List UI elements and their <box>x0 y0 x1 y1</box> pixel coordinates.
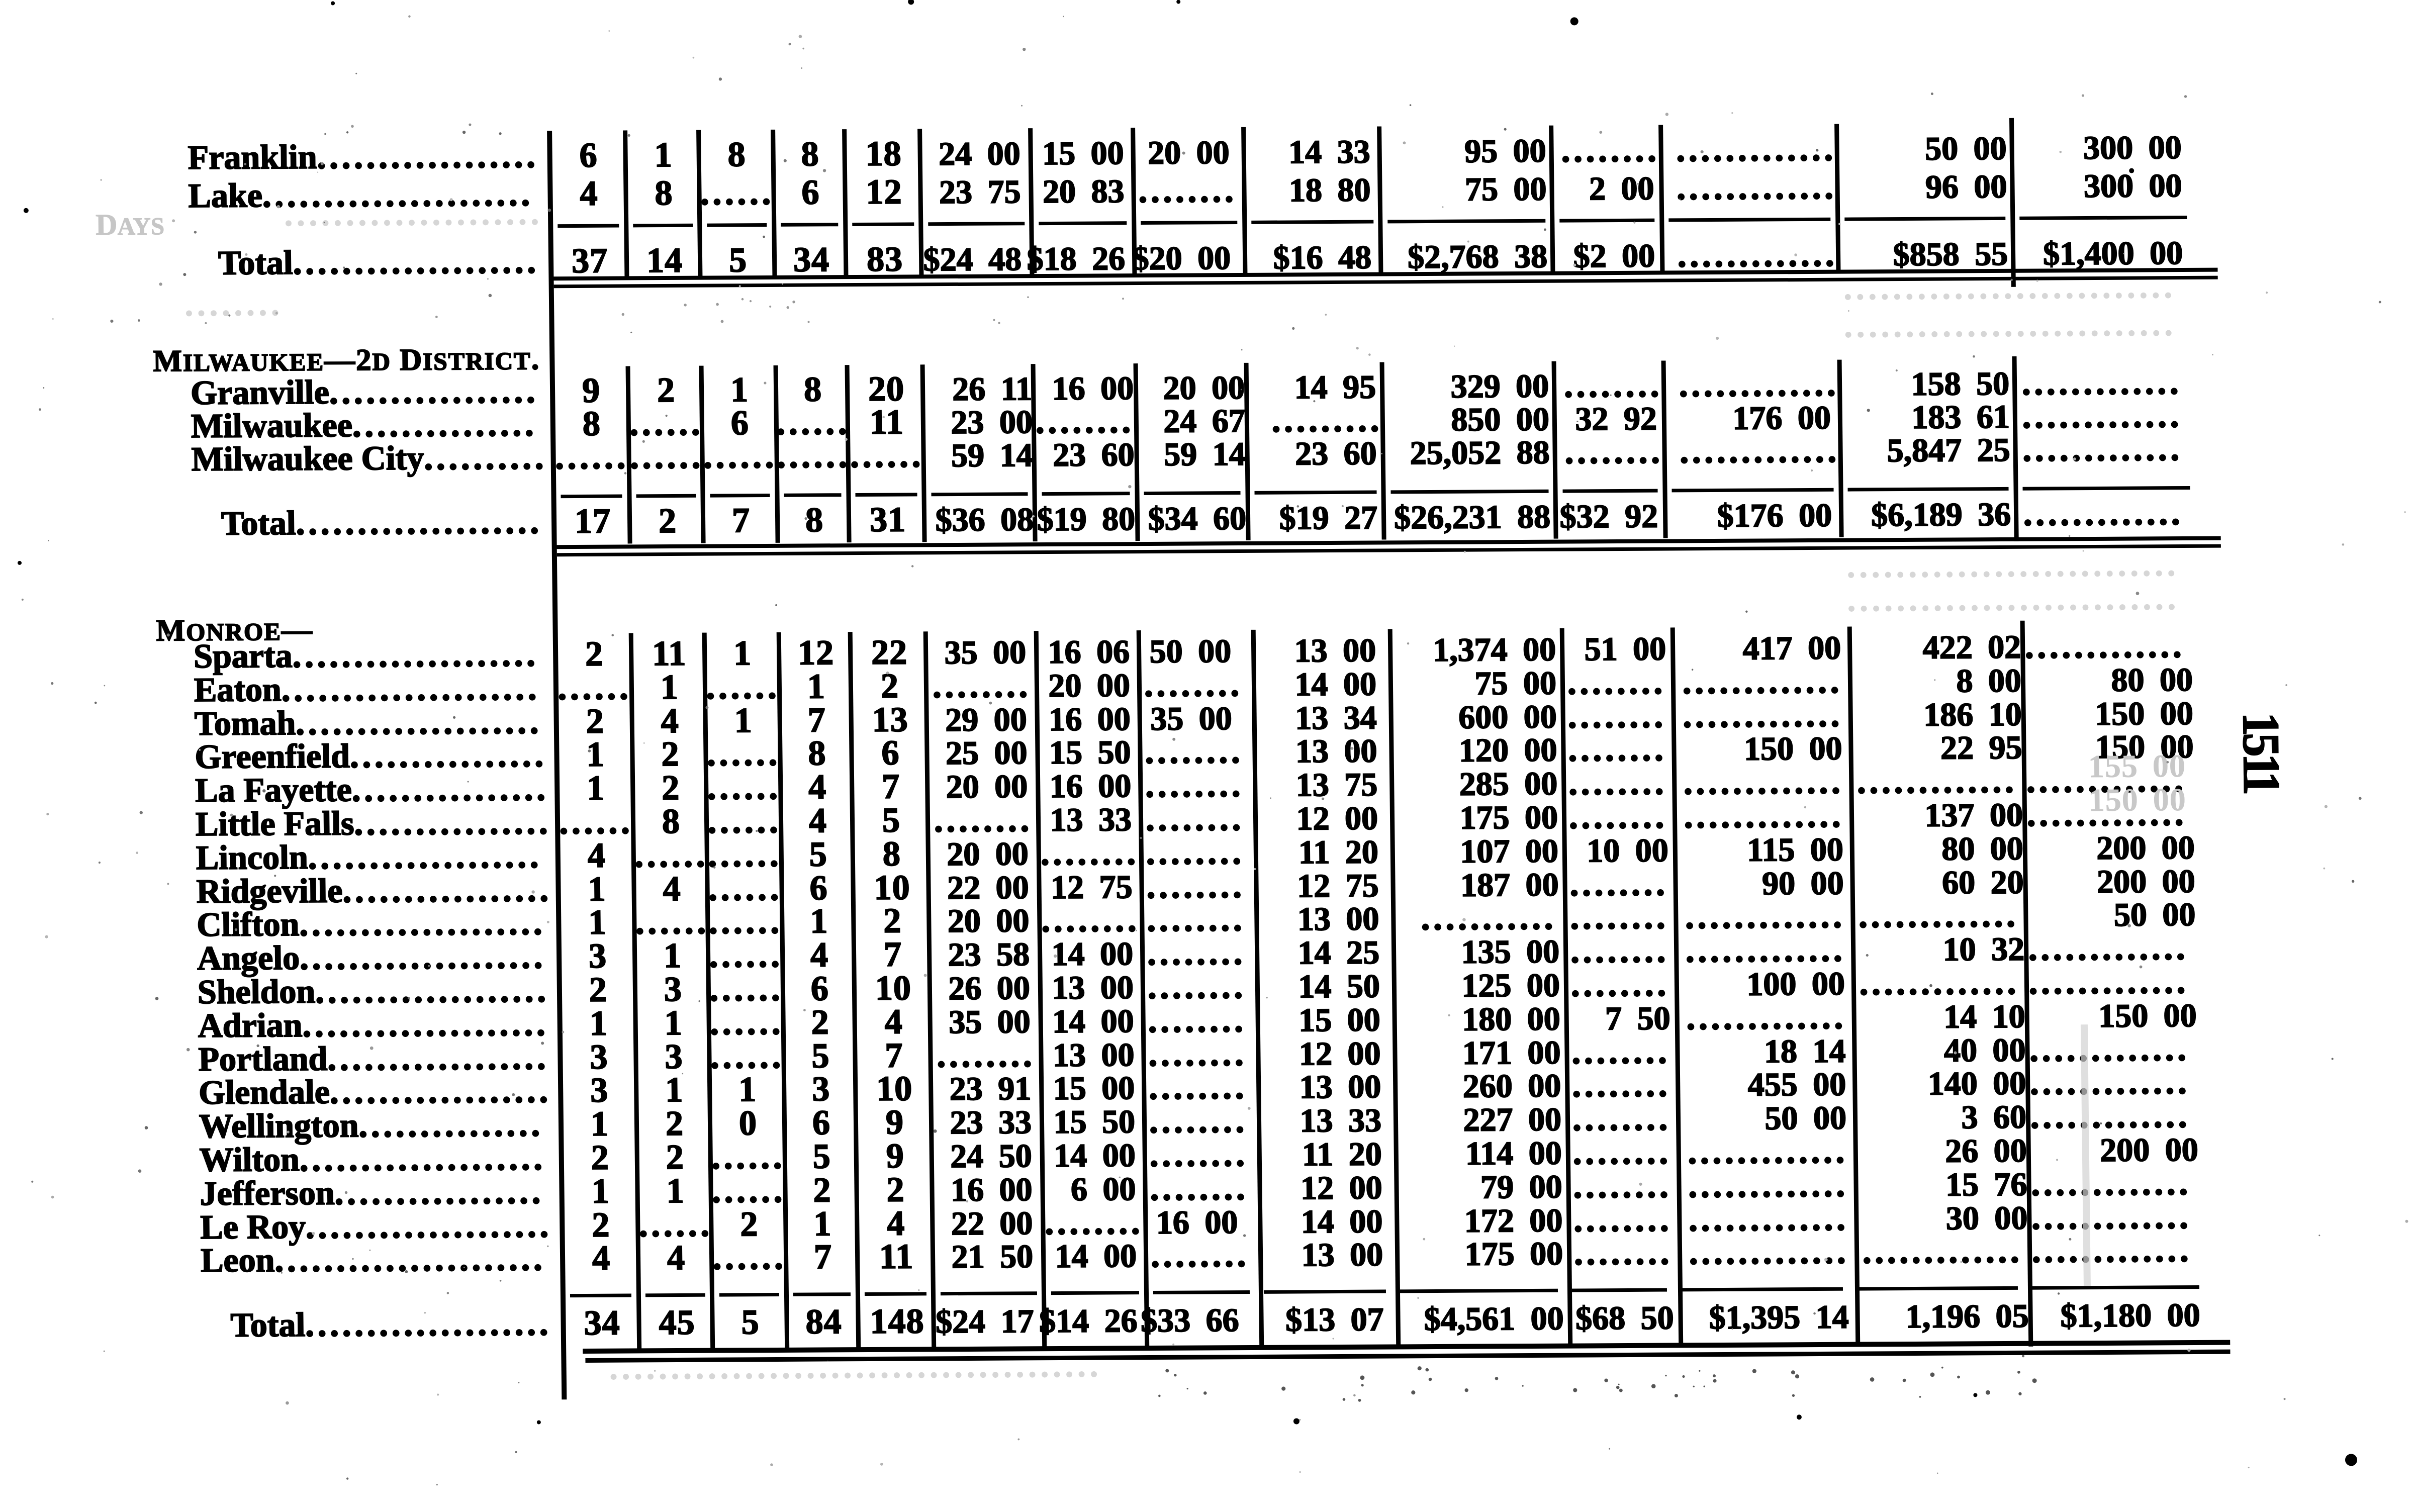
svg-text:31: 31 <box>870 501 906 539</box>
svg-text:$2 00: $2 00 <box>1573 238 1655 275</box>
svg-text:7: 7 <box>884 935 902 974</box>
svg-text:600 00: 600 00 <box>1458 699 1557 736</box>
svg-text:$2,768 38: $2,768 38 <box>1408 238 1548 275</box>
svg-text:......: ...... <box>634 836 709 875</box>
svg-text:........: ........ <box>1150 1169 1249 1208</box>
svg-text:260 00: 260 00 <box>1462 1068 1561 1105</box>
svg-text:......: ...... <box>706 668 780 707</box>
svg-text:$13 07: $13 07 <box>1285 1301 1384 1339</box>
svg-text:850 00: 850 00 <box>1451 401 1549 438</box>
svg-text:$1,180 00: $1,180 00 <box>2060 1297 2200 1334</box>
svg-text:12: 12 <box>866 173 902 212</box>
svg-text:300 00: 300 00 <box>2083 129 2182 166</box>
svg-text:11 20: 11 20 <box>1302 1136 1382 1173</box>
svg-text:2: 2 <box>591 1139 609 1177</box>
svg-text:15 00: 15 00 <box>1042 135 1124 172</box>
svg-text:455 00: 455 00 <box>1747 1066 1846 1103</box>
svg-text:.............: ............. <box>1859 896 2019 935</box>
svg-text:$34 60: $34 60 <box>1148 500 1246 537</box>
svg-text:140 00: 140 00 <box>1927 1065 2026 1102</box>
svg-text:5: 5 <box>809 835 827 874</box>
svg-text:20 00: 20 00 <box>1048 667 1130 704</box>
svg-text:.............: ............. <box>2031 1231 2192 1270</box>
svg-text:37: 37 <box>572 242 608 280</box>
svg-text:5: 5 <box>741 1303 760 1342</box>
svg-text:22 00: 22 00 <box>947 869 1029 906</box>
svg-text:50 00: 50 00 <box>1925 130 2007 167</box>
svg-text:5: 5 <box>729 241 748 279</box>
svg-text:155 00: 155 00 <box>2088 748 2186 784</box>
svg-text:2: 2 <box>662 769 680 807</box>
svg-text:35 00: 35 00 <box>949 1003 1031 1041</box>
svg-text:83: 83 <box>867 240 903 279</box>
svg-text:$26,231 88: $26,231 88 <box>1394 499 1551 536</box>
svg-text:150 00: 150 00 <box>2088 782 2186 818</box>
svg-text:1: 1 <box>654 136 673 174</box>
svg-text:4: 4 <box>667 1239 686 1277</box>
svg-text:2: 2 <box>661 735 680 774</box>
svg-text:.............: ............. <box>2024 626 2185 666</box>
svg-text:.............: ............. <box>1676 130 1836 169</box>
svg-text:15 00: 15 00 <box>1298 1002 1380 1039</box>
svg-text:Total....................: Total.................... <box>218 242 540 282</box>
svg-text:200 00: 200 00 <box>2100 1131 2198 1169</box>
svg-text:13 33: 13 33 <box>1050 801 1132 838</box>
svg-text:3: 3 <box>590 1071 609 1110</box>
svg-text:12 00: 12 00 <box>1299 1035 1381 1073</box>
svg-text:20 00: 20 00 <box>947 835 1029 873</box>
svg-text:$18 26: $18 26 <box>1027 240 1125 277</box>
svg-text:20 83: 20 83 <box>1043 173 1125 210</box>
svg-text:.............: ............. <box>1859 963 2019 1003</box>
svg-text:2: 2 <box>589 971 607 1009</box>
svg-text:$20 00: $20 00 <box>1132 240 1231 277</box>
svg-text:......: ...... <box>707 802 782 841</box>
svg-text:......: ...... <box>850 436 924 475</box>
svg-text:........: ........ <box>1151 1236 1250 1275</box>
svg-text:......: ...... <box>559 802 633 841</box>
svg-text:22 00: 22 00 <box>951 1205 1033 1242</box>
svg-text:158 50: 158 50 <box>1911 365 2009 403</box>
svg-text:11: 11 <box>879 1238 914 1276</box>
svg-text:50 00: 50 00 <box>1149 633 1231 670</box>
svg-text:.............: ............. <box>2028 962 2189 1002</box>
svg-text:20 00: 20 00 <box>1163 369 1245 407</box>
svg-text:25,052 88: 25,052 88 <box>1410 434 1550 471</box>
svg-text:5,847 25: 5,847 25 <box>1887 432 2010 469</box>
svg-text:14 00: 14 00 <box>1054 1137 1136 1174</box>
svg-text:17: 17 <box>575 502 611 541</box>
svg-text:2: 2 <box>585 635 604 674</box>
svg-text:12 00: 12 00 <box>1301 1170 1382 1207</box>
svg-text:$19 80: $19 80 <box>1037 501 1135 538</box>
svg-text:........: ........ <box>1045 1203 1144 1242</box>
svg-text:25 00: 25 00 <box>946 734 1028 772</box>
svg-text:1: 1 <box>591 1105 609 1144</box>
svg-text:.............: ............. <box>1679 365 1839 405</box>
svg-text:.............: ............. <box>1689 1233 1849 1272</box>
svg-text:14 50: 14 50 <box>1298 968 1380 1005</box>
svg-text:........: ........ <box>932 666 1031 705</box>
svg-text:1,196 05: 1,196 05 <box>1905 1298 2029 1335</box>
svg-text:50 00: 50 00 <box>1765 1100 1846 1137</box>
svg-text:50 00: 50 00 <box>2113 896 2195 933</box>
svg-text:.............: ............. <box>2022 429 2183 469</box>
svg-text:107 00: 107 00 <box>1460 833 1558 870</box>
svg-text:23 00: 23 00 <box>951 404 1033 441</box>
svg-text:........: ........ <box>1138 171 1237 210</box>
svg-text:183 61: 183 61 <box>1911 399 2010 436</box>
svg-text:14 10: 14 10 <box>1943 998 2025 1035</box>
svg-text:3 60: 3 60 <box>1961 1099 2026 1136</box>
svg-text:........: ........ <box>1035 402 1134 441</box>
svg-text:26 00: 26 00 <box>1945 1132 2027 1170</box>
svg-text:.............: ............. <box>2023 494 2183 533</box>
svg-text:$68 50: $68 50 <box>1575 1300 1674 1337</box>
svg-text:75 00: 75 00 <box>1474 665 1556 702</box>
svg-text:23 60: 23 60 <box>1053 436 1135 474</box>
svg-text:13 00: 13 00 <box>1053 1036 1135 1074</box>
svg-text:172 00: 172 00 <box>1464 1202 1562 1240</box>
svg-text:.............: ............. <box>1680 431 1840 471</box>
svg-text:300 00: 300 00 <box>2084 167 2182 205</box>
svg-text:......: ...... <box>711 1138 786 1177</box>
svg-text:6: 6 <box>812 1103 831 1142</box>
svg-text:.............: ............. <box>1684 796 1844 836</box>
svg-text:.............: ............. <box>1686 998 1846 1037</box>
svg-text:115 00: 115 00 <box>1747 831 1844 869</box>
svg-text:8: 8 <box>805 501 824 539</box>
svg-text:45: 45 <box>659 1303 695 1342</box>
svg-text:29 00: 29 00 <box>945 701 1027 738</box>
svg-text:1: 1 <box>587 769 605 808</box>
svg-text:34: 34 <box>584 1304 620 1343</box>
svg-text:8: 8 <box>882 835 901 874</box>
svg-text:......: ...... <box>555 437 629 477</box>
svg-text:200 00: 200 00 <box>2097 863 2195 900</box>
svg-text:Milwaukee City..........: Milwaukee City.......... <box>191 438 547 479</box>
svg-text:15 50: 15 50 <box>1053 1103 1135 1141</box>
svg-text:9: 9 <box>886 1137 904 1176</box>
svg-text:6: 6 <box>579 136 598 175</box>
svg-text:59 14: 59 14 <box>951 437 1033 474</box>
svg-text:9: 9 <box>886 1103 904 1142</box>
svg-text:1: 1 <box>738 1070 757 1109</box>
svg-text:1: 1 <box>586 735 605 774</box>
svg-text:24 00: 24 00 <box>939 135 1020 172</box>
svg-text:$19 27: $19 27 <box>1279 500 1377 537</box>
svg-text:4: 4 <box>580 174 598 213</box>
svg-text:175 00: 175 00 <box>1459 799 1558 836</box>
svg-text:6: 6 <box>801 173 820 212</box>
svg-text:...........: ........... <box>1421 898 1556 937</box>
svg-text:2: 2 <box>813 1171 831 1209</box>
svg-text:......: ...... <box>709 970 784 1009</box>
svg-text:150 00: 150 00 <box>1744 730 1842 768</box>
svg-text:Leon......................: Leon...................... <box>201 1239 546 1280</box>
svg-text:15 76: 15 76 <box>1945 1166 2027 1203</box>
svg-text:........: ........ <box>1040 833 1139 873</box>
svg-text:$14 26: $14 26 <box>1039 1302 1138 1340</box>
svg-text:......: ...... <box>710 1003 784 1043</box>
svg-text:........: ........ <box>1564 432 1663 471</box>
svg-text:186 10: 186 10 <box>1923 696 2022 733</box>
svg-text:11: 11 <box>652 634 687 673</box>
svg-text:Franklin..................: Franklin.................. <box>188 136 539 177</box>
svg-text:3: 3 <box>589 937 607 976</box>
svg-text:135 00: 135 00 <box>1461 933 1559 971</box>
svg-text:$36 08: $36 08 <box>935 501 1034 538</box>
svg-text:........: ........ <box>934 800 1033 839</box>
svg-text:16 00: 16 00 <box>1049 701 1131 738</box>
svg-text:1: 1 <box>660 668 679 707</box>
svg-text:14 00: 14 00 <box>1055 1238 1137 1275</box>
svg-text:.............: ............. <box>1677 168 1837 208</box>
svg-text:40 00: 40 00 <box>1944 1032 2026 1069</box>
svg-text:........: ........ <box>1569 797 1668 836</box>
svg-text:35 00: 35 00 <box>944 634 1026 671</box>
svg-text:13 00: 13 00 <box>1294 632 1376 670</box>
svg-text:23 75: 23 75 <box>939 173 1021 211</box>
svg-text:227 00: 227 00 <box>1463 1101 1561 1139</box>
svg-text:4: 4 <box>810 935 829 974</box>
svg-text:2: 2 <box>666 1138 684 1177</box>
svg-text:.............: ............. <box>1862 1232 2022 1271</box>
svg-text:$4,561 00: $4,561 00 <box>1424 1300 1564 1338</box>
svg-text:1: 1 <box>664 1004 683 1043</box>
svg-text:1: 1 <box>810 902 828 940</box>
svg-text:16 00: 16 00 <box>951 1171 1033 1208</box>
svg-text:........: ........ <box>1041 900 1140 939</box>
svg-text:1,374 00: 1,374 00 <box>1433 631 1556 669</box>
svg-text:0: 0 <box>739 1104 758 1143</box>
svg-text:3: 3 <box>812 1070 830 1108</box>
svg-text:......: ...... <box>709 936 783 975</box>
svg-text:171 00: 171 00 <box>1462 1034 1561 1072</box>
svg-text:22 95: 22 95 <box>1940 729 2022 767</box>
svg-text:16 06: 16 06 <box>1048 633 1130 671</box>
svg-text:......: ...... <box>558 668 632 707</box>
svg-text:1511: 1511 <box>2232 712 2290 793</box>
svg-text:........: ........ <box>1574 1234 1673 1273</box>
svg-text:16 00: 16 00 <box>1049 768 1131 805</box>
svg-text:84: 84 <box>805 1302 842 1341</box>
svg-text:1: 1 <box>807 667 825 706</box>
svg-text:4: 4 <box>587 836 606 875</box>
svg-text:285 00: 285 00 <box>1459 766 1557 803</box>
svg-text:$6,189 36: $6,189 36 <box>1871 496 2011 533</box>
svg-text:14: 14 <box>646 241 683 280</box>
svg-text:23 58: 23 58 <box>948 936 1030 973</box>
svg-text:24 67: 24 67 <box>1163 403 1245 440</box>
svg-text:59 14: 59 14 <box>1164 436 1246 473</box>
svg-text:6: 6 <box>810 969 829 1008</box>
svg-text:DAYS: DAYS <box>96 208 165 241</box>
svg-text:$32 92: $32 92 <box>1559 498 1658 535</box>
svg-text:75 00: 75 00 <box>1465 171 1547 208</box>
svg-text:......: ...... <box>712 1238 787 1277</box>
svg-text:2: 2 <box>886 1171 905 1209</box>
svg-text:14 25: 14 25 <box>1297 934 1379 972</box>
svg-text:$24 48: $24 48 <box>923 241 1022 278</box>
svg-text:23 60: 23 60 <box>1295 435 1377 472</box>
svg-text:5: 5 <box>882 801 901 840</box>
svg-text:18: 18 <box>865 135 902 173</box>
svg-text:........: ........ <box>1564 366 1663 405</box>
svg-text:15 00: 15 00 <box>1053 1070 1135 1107</box>
svg-text:95 00: 95 00 <box>1464 133 1546 170</box>
svg-text:......: ...... <box>708 902 783 941</box>
svg-text:$24 17: $24 17 <box>936 1303 1034 1340</box>
svg-text:137 00: 137 00 <box>1924 797 2023 834</box>
svg-text:120 00: 120 00 <box>1459 732 1557 769</box>
svg-text:10 32: 10 32 <box>1942 931 2024 968</box>
svg-text:20 00: 20 00 <box>946 768 1028 805</box>
svg-text:$858 55: $858 55 <box>1893 236 2008 273</box>
svg-text:26 00: 26 00 <box>948 970 1030 1007</box>
svg-text:...........................: ........................... <box>1843 267 2176 308</box>
svg-text:13 00: 13 00 <box>1295 733 1377 770</box>
svg-text:80 00: 80 00 <box>2111 661 2193 699</box>
svg-text:.............: ............. <box>1685 930 1845 970</box>
svg-text:7 50: 7 50 <box>1605 1000 1670 1037</box>
svg-text:......: ...... <box>708 835 782 875</box>
svg-text:14 00: 14 00 <box>1051 935 1133 973</box>
svg-text:20 00: 20 00 <box>1148 134 1230 171</box>
svg-text:1: 1 <box>591 1172 610 1211</box>
svg-text:15 50: 15 50 <box>1049 734 1131 771</box>
svg-text:12 00: 12 00 <box>1296 800 1378 837</box>
svg-text:2: 2 <box>880 667 899 706</box>
svg-text:13 00: 13 00 <box>1301 1237 1383 1274</box>
svg-text:...........................: ........................... <box>1843 305 2176 345</box>
svg-text:4: 4 <box>592 1239 611 1278</box>
svg-text:7: 7 <box>814 1238 832 1276</box>
svg-text:6: 6 <box>881 734 900 773</box>
svg-text:6 00: 6 00 <box>1071 1171 1136 1208</box>
svg-text:......: ...... <box>630 437 704 477</box>
svg-text:26 11: 26 11 <box>952 370 1033 408</box>
svg-text:......: ...... <box>707 768 781 807</box>
svg-text:......: ...... <box>700 173 775 213</box>
svg-text:1: 1 <box>589 1004 608 1043</box>
svg-text:8: 8 <box>727 135 746 174</box>
svg-text:10: 10 <box>876 1070 913 1108</box>
svg-text:14 33: 14 33 <box>1288 134 1370 171</box>
svg-text:125 00: 125 00 <box>1461 967 1560 1004</box>
svg-text:.............: ............. <box>1677 235 1837 275</box>
svg-text:........: ........ <box>1570 965 1669 1004</box>
svg-text:5: 5 <box>812 1137 831 1176</box>
svg-text:Total....................: Total.................... <box>221 502 543 542</box>
svg-text:180 00: 180 00 <box>1462 1001 1560 1038</box>
svg-text:1: 1 <box>665 1071 684 1109</box>
svg-text:4: 4 <box>809 801 827 840</box>
svg-text:......: ...... <box>707 734 781 774</box>
svg-text:......: ...... <box>703 437 778 476</box>
svg-text:4: 4 <box>884 1003 903 1042</box>
svg-text:422 02: 422 02 <box>1922 629 2021 666</box>
svg-text:.............: ............. <box>1683 696 1843 735</box>
svg-text:13 00: 13 00 <box>1052 969 1134 1006</box>
svg-text:14 00: 14 00 <box>1294 666 1376 703</box>
svg-text:2: 2 <box>659 502 677 540</box>
svg-text:2: 2 <box>811 1003 829 1042</box>
svg-text:$1,395 14: $1,395 14 <box>1709 1299 1849 1336</box>
svg-text:..............................: ........................................ <box>609 1346 1102 1387</box>
svg-text:12 75: 12 75 <box>1297 868 1379 905</box>
svg-text:148: 148 <box>870 1302 924 1341</box>
svg-text:.....................: ..................... <box>284 194 543 234</box>
svg-text:8 00: 8 00 <box>1956 663 2021 700</box>
svg-text:........: ........ <box>184 285 284 324</box>
svg-text:8: 8 <box>801 135 819 173</box>
svg-text:$33 66: $33 66 <box>1141 1302 1239 1339</box>
svg-text:23 33: 23 33 <box>950 1104 1032 1141</box>
svg-text:4: 4 <box>808 768 827 806</box>
svg-text:$176 00: $176 00 <box>1717 497 1832 534</box>
svg-text:11 20: 11 20 <box>1298 834 1379 871</box>
svg-text:200 00: 200 00 <box>2096 829 2195 867</box>
svg-text:.........: ......... <box>1271 400 1382 439</box>
svg-text:175 00: 175 00 <box>1464 1236 1563 1273</box>
svg-text:1: 1 <box>666 1172 685 1210</box>
svg-text:........: ........ <box>1561 131 1660 170</box>
svg-text:2: 2 <box>666 1104 684 1143</box>
svg-text:14 00: 14 00 <box>1052 1003 1134 1040</box>
svg-text:8: 8 <box>662 802 681 841</box>
svg-text:$16 48: $16 48 <box>1273 239 1371 276</box>
svg-text:80 00: 80 00 <box>1941 830 2023 868</box>
svg-text:7: 7 <box>732 501 751 540</box>
svg-text:.............: ............. <box>2030 1096 2190 1136</box>
svg-text:........: ........ <box>1144 665 1243 704</box>
svg-text:114 00: 114 00 <box>1465 1135 1562 1172</box>
svg-text:23 91: 23 91 <box>949 1070 1031 1107</box>
svg-text:3: 3 <box>664 970 682 1009</box>
svg-text:24 50: 24 50 <box>950 1138 1032 1175</box>
svg-text:......: ...... <box>712 1171 786 1210</box>
svg-text:2: 2 <box>883 902 902 940</box>
svg-text:........: ........ <box>937 1035 1036 1075</box>
svg-text:96 00: 96 00 <box>1925 168 2007 206</box>
svg-text:14 00: 14 00 <box>1301 1203 1382 1241</box>
svg-text:100 00: 100 00 <box>1746 966 1845 1003</box>
svg-text:20 00: 20 00 <box>947 902 1029 939</box>
svg-text:13 33: 13 33 <box>1300 1102 1381 1140</box>
svg-text:18 14: 18 14 <box>1764 1033 1846 1070</box>
svg-text:13 34: 13 34 <box>1295 700 1377 737</box>
svg-text:.............: ............. <box>1857 762 2017 801</box>
svg-text:150 00: 150 00 <box>2095 695 2193 732</box>
svg-text:79 00: 79 00 <box>1480 1169 1562 1206</box>
svg-text:...........................: ........................... <box>1847 579 2180 619</box>
svg-text:13 75: 13 75 <box>1295 767 1377 804</box>
svg-text:12: 12 <box>798 633 834 672</box>
svg-text:8: 8 <box>655 174 673 213</box>
svg-text:13 00: 13 00 <box>1299 1069 1381 1106</box>
svg-text:1: 1 <box>664 936 682 975</box>
svg-text:10 00: 10 00 <box>1587 832 1668 870</box>
svg-text:......: ...... <box>635 903 709 942</box>
svg-text:51 00: 51 00 <box>1584 631 1666 668</box>
svg-text:22: 22 <box>871 633 908 672</box>
svg-text:34: 34 <box>793 240 830 279</box>
svg-text:1: 1 <box>733 634 752 673</box>
svg-text:150 00: 150 00 <box>2098 997 2197 1034</box>
svg-text:Total....................: Total.................... <box>230 1304 552 1344</box>
svg-text:10: 10 <box>875 969 911 1008</box>
